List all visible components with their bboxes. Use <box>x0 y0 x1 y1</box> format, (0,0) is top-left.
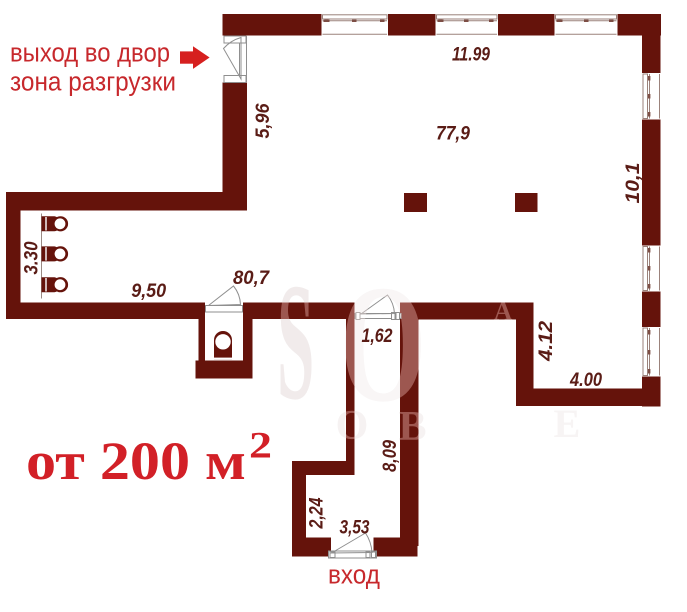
svg-text:77,9: 77,9 <box>436 124 470 145</box>
svg-text:вход: вход <box>328 560 380 590</box>
svg-text:8,09: 8,09 <box>380 440 401 472</box>
svg-text:от 200 м: от 200 м <box>26 431 246 491</box>
svg-text:В: В <box>398 404 426 450</box>
svg-text:4.12: 4.12 <box>536 321 557 363</box>
svg-text:выход во двор: выход во двор <box>10 38 170 68</box>
svg-text:А: А <box>494 297 513 326</box>
svg-text:2: 2 <box>249 426 272 467</box>
svg-text:4.00: 4.00 <box>569 370 602 391</box>
svg-text:9,50: 9,50 <box>131 281 166 302</box>
svg-text:5,96: 5,96 <box>253 103 274 138</box>
svg-text:80,7: 80,7 <box>233 268 270 289</box>
svg-text:1,62: 1,62 <box>362 326 393 347</box>
svg-text:S: S <box>277 248 314 434</box>
svg-text:3,53: 3,53 <box>340 518 370 539</box>
svg-text:11.99: 11.99 <box>452 45 490 66</box>
svg-text:2,24: 2,24 <box>307 497 328 529</box>
svg-text:О: О <box>336 403 369 449</box>
svg-text:зона разгрузки: зона разгрузки <box>10 67 176 97</box>
svg-text:10,1: 10,1 <box>623 163 644 204</box>
svg-text:3.30: 3.30 <box>22 241 43 274</box>
svg-text:Е: Е <box>554 401 581 446</box>
